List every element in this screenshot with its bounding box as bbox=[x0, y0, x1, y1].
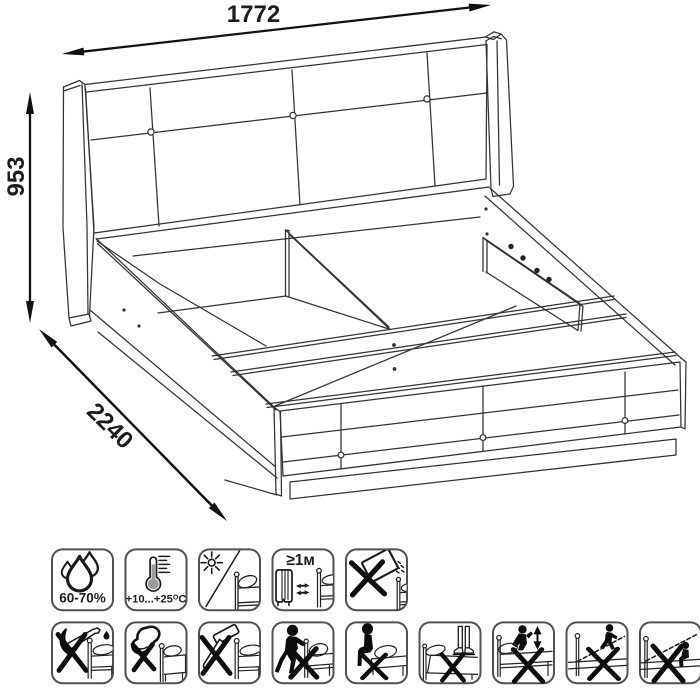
svg-text:2240: 2240 bbox=[81, 398, 138, 455]
svg-text:≥1м: ≥1м bbox=[286, 552, 315, 569]
svg-text:953: 953 bbox=[3, 156, 30, 196]
svg-text:60-70%: 60-70% bbox=[59, 590, 106, 605]
svg-text:1772: 1772 bbox=[227, 1, 280, 28]
